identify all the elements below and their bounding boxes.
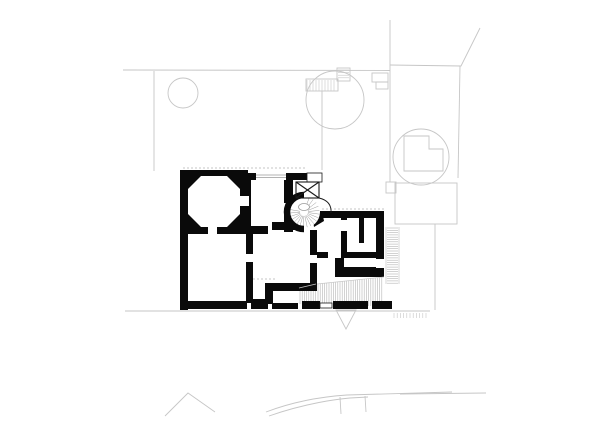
- wall-segment: [359, 218, 364, 243]
- context-line: [365, 396, 366, 412]
- wall-segment: [302, 301, 320, 309]
- context-polyline: [165, 393, 215, 416]
- context-building-rect: [395, 183, 457, 224]
- wall-segment: [320, 211, 382, 218]
- door-opening: [246, 254, 253, 262]
- door-opening: [256, 173, 286, 180]
- threshold-box: [320, 303, 332, 308]
- wall-segment: [216, 226, 268, 234]
- context-building-rect: [372, 73, 388, 82]
- context-path: [269, 397, 368, 416]
- wall-segment: [313, 252, 377, 258]
- context-path: [266, 392, 452, 412]
- context-building-rect: [386, 182, 396, 193]
- context-tree-circle: [393, 129, 449, 185]
- wall-segment: [272, 303, 298, 309]
- door-opening: [310, 255, 317, 263]
- context-path: [404, 136, 443, 171]
- wall-segment: [180, 170, 188, 310]
- context-line: [458, 66, 460, 178]
- context-building-rect: [376, 82, 388, 89]
- wall-segment: [333, 301, 368, 309]
- hatch-border: [317, 277, 384, 284]
- door-opening: [341, 220, 347, 231]
- curved-wall: [319, 198, 331, 213]
- shaft-upper-box: [307, 173, 322, 182]
- stair-newel: [299, 204, 310, 211]
- wall-segment: [341, 267, 384, 277]
- context-line: [340, 397, 341, 414]
- door-opening: [208, 224, 217, 235]
- entrance-arrow-triangle: [336, 310, 356, 329]
- context-polyline: [390, 28, 480, 66]
- context-tree-circle: [306, 71, 364, 129]
- floor-plan-page: [0, 0, 600, 424]
- door-opening: [236, 196, 249, 206]
- wall-segment: [251, 299, 268, 309]
- door-opening: [328, 252, 341, 258]
- octagonal-room: [188, 176, 240, 227]
- wall-segment: [185, 301, 247, 309]
- wall-segment: [372, 301, 392, 309]
- context-tree-circle: [168, 78, 198, 108]
- door-opening: [376, 259, 384, 268]
- wall-segment: [246, 229, 253, 303]
- floor-plan-canvas: [0, 0, 600, 424]
